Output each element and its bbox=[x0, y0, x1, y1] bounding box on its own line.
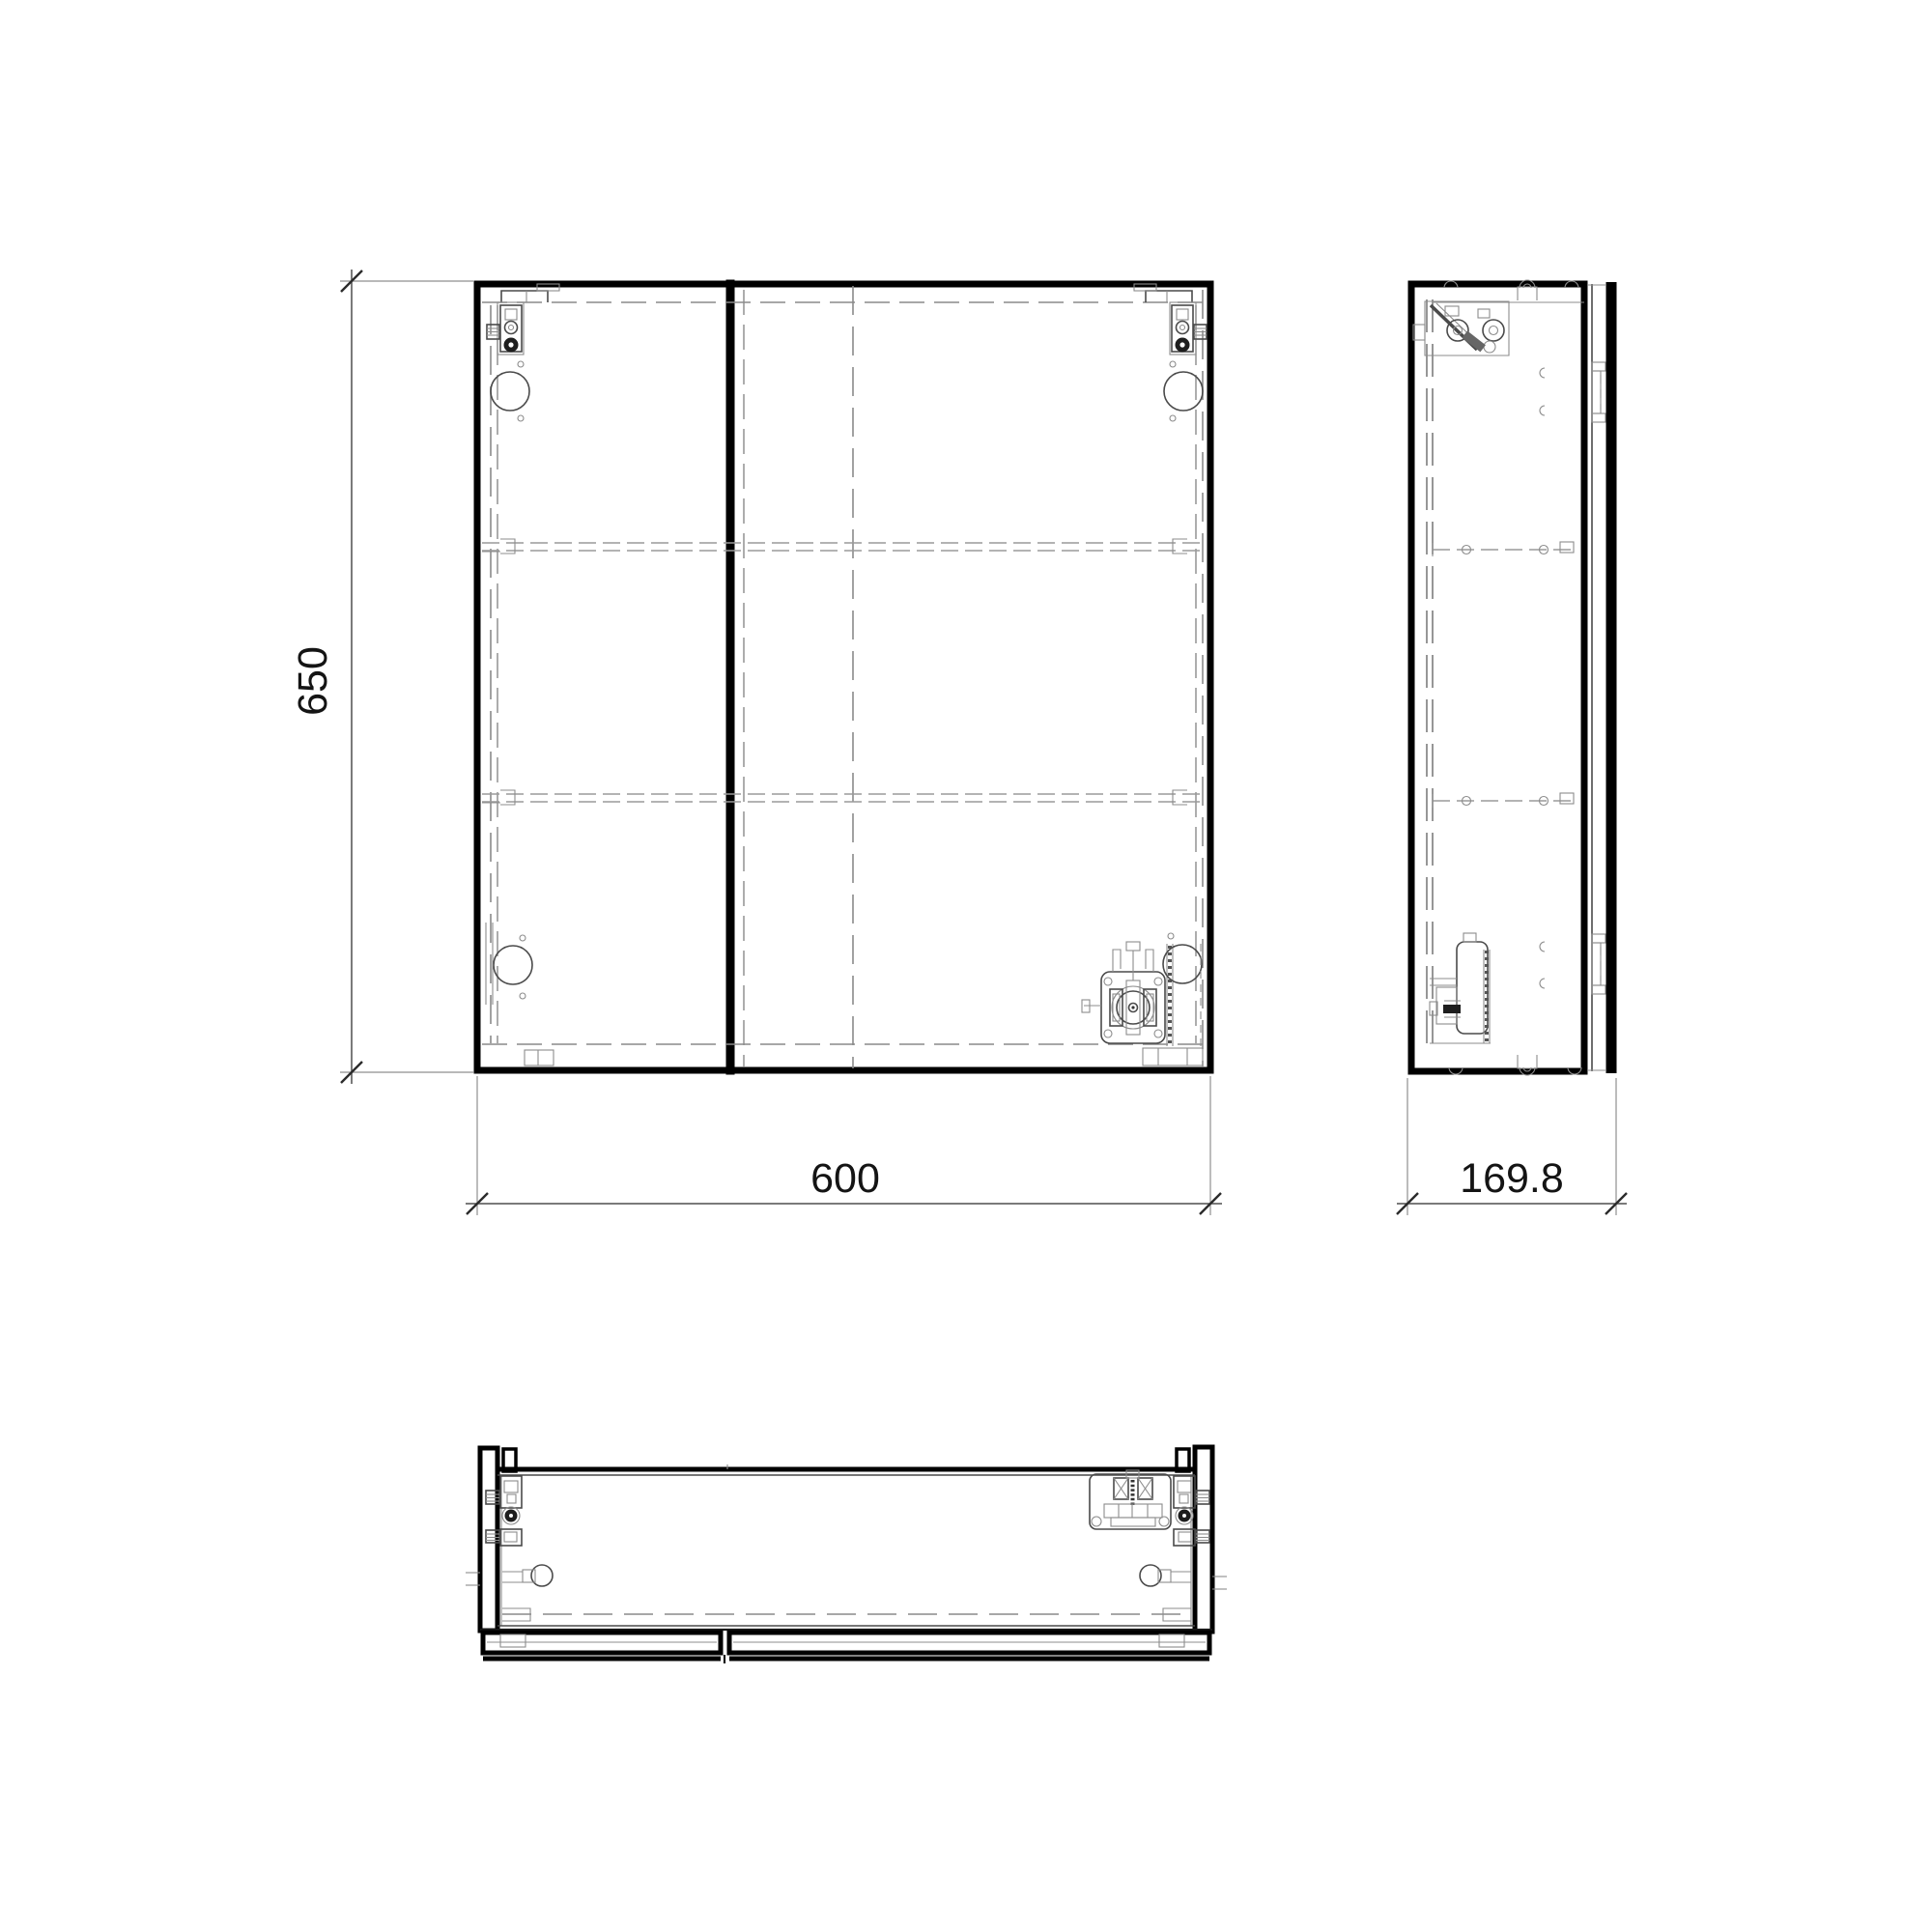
bottom-hinge-left bbox=[486, 1476, 522, 1546]
front-power-socket bbox=[1082, 933, 1203, 1065]
front-view bbox=[477, 284, 1210, 1070]
side-wall-hanger bbox=[1413, 301, 1509, 355]
bottom-power-socket bbox=[1090, 1470, 1171, 1529]
front-shelf-2 bbox=[482, 790, 1206, 805]
bottom-left-side-panel bbox=[480, 1448, 497, 1631]
front-hinge-top-right bbox=[1134, 284, 1207, 421]
width-dimension-label: 600 bbox=[810, 1155, 880, 1202]
side-power-socket bbox=[1430, 933, 1491, 1043]
side-carcass-outline bbox=[1411, 284, 1584, 1071]
front-hidden-lines bbox=[482, 286, 1206, 1068]
depth-dimension-label: 169.8 bbox=[1460, 1155, 1564, 1202]
height-dimension-label: 650 bbox=[290, 646, 336, 716]
side-hinge-plate-bottom bbox=[1592, 934, 1605, 994]
front-hinge-top-left bbox=[487, 284, 559, 421]
side-view bbox=[1411, 280, 1611, 1075]
front-shelf-1 bbox=[482, 539, 1206, 554]
bottom-view bbox=[466, 1447, 1227, 1663]
bottom-door-left bbox=[483, 1633, 721, 1659]
bottom-hinge-right bbox=[1174, 1476, 1209, 1546]
dimension-height: 650 bbox=[290, 270, 473, 1084]
dimension-depth: 169.8 bbox=[1397, 1078, 1627, 1215]
front-cabinet-outline bbox=[477, 284, 1210, 1070]
dimension-width: 600 bbox=[466, 1076, 1222, 1215]
side-hinge-plate-top bbox=[1592, 362, 1605, 422]
technical-drawing-canvas: 650 600 169.8 bbox=[0, 0, 1932, 1932]
side-shelf-2 bbox=[1433, 793, 1577, 808]
side-shelf-1 bbox=[1433, 542, 1577, 556]
bottom-door-right bbox=[729, 1633, 1209, 1659]
